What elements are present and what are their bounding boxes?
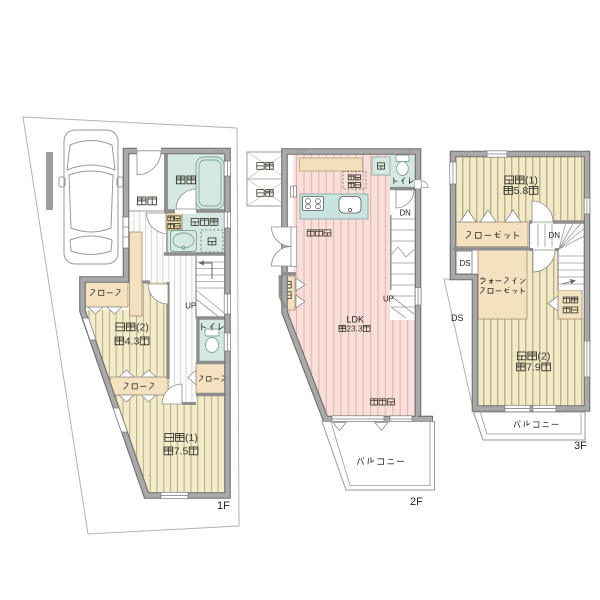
svg-text:1F: 1F: [217, 500, 230, 512]
svg-text:DN: DN: [549, 231, 561, 240]
svg-text:23.3: 23.3: [347, 324, 363, 333]
svg-text:DS: DS: [460, 259, 471, 268]
svg-text:3F: 3F: [574, 440, 587, 452]
svg-text:LDK: LDK: [347, 315, 365, 325]
svg-text:5.8: 5.8: [514, 185, 529, 197]
svg-text:UP: UP: [383, 294, 394, 303]
svg-text:(1): (1): [185, 432, 198, 444]
svg-text:7.5: 7.5: [174, 446, 189, 458]
svg-text:(2): (2): [136, 322, 149, 334]
svg-text:4.3: 4.3: [125, 336, 140, 348]
svg-text:7.9: 7.9: [526, 362, 541, 374]
svg-text:UP: UP: [185, 302, 196, 311]
svg-text:2F: 2F: [410, 496, 423, 508]
svg-text:DN: DN: [400, 209, 411, 218]
svg-text:DS: DS: [451, 313, 464, 323]
